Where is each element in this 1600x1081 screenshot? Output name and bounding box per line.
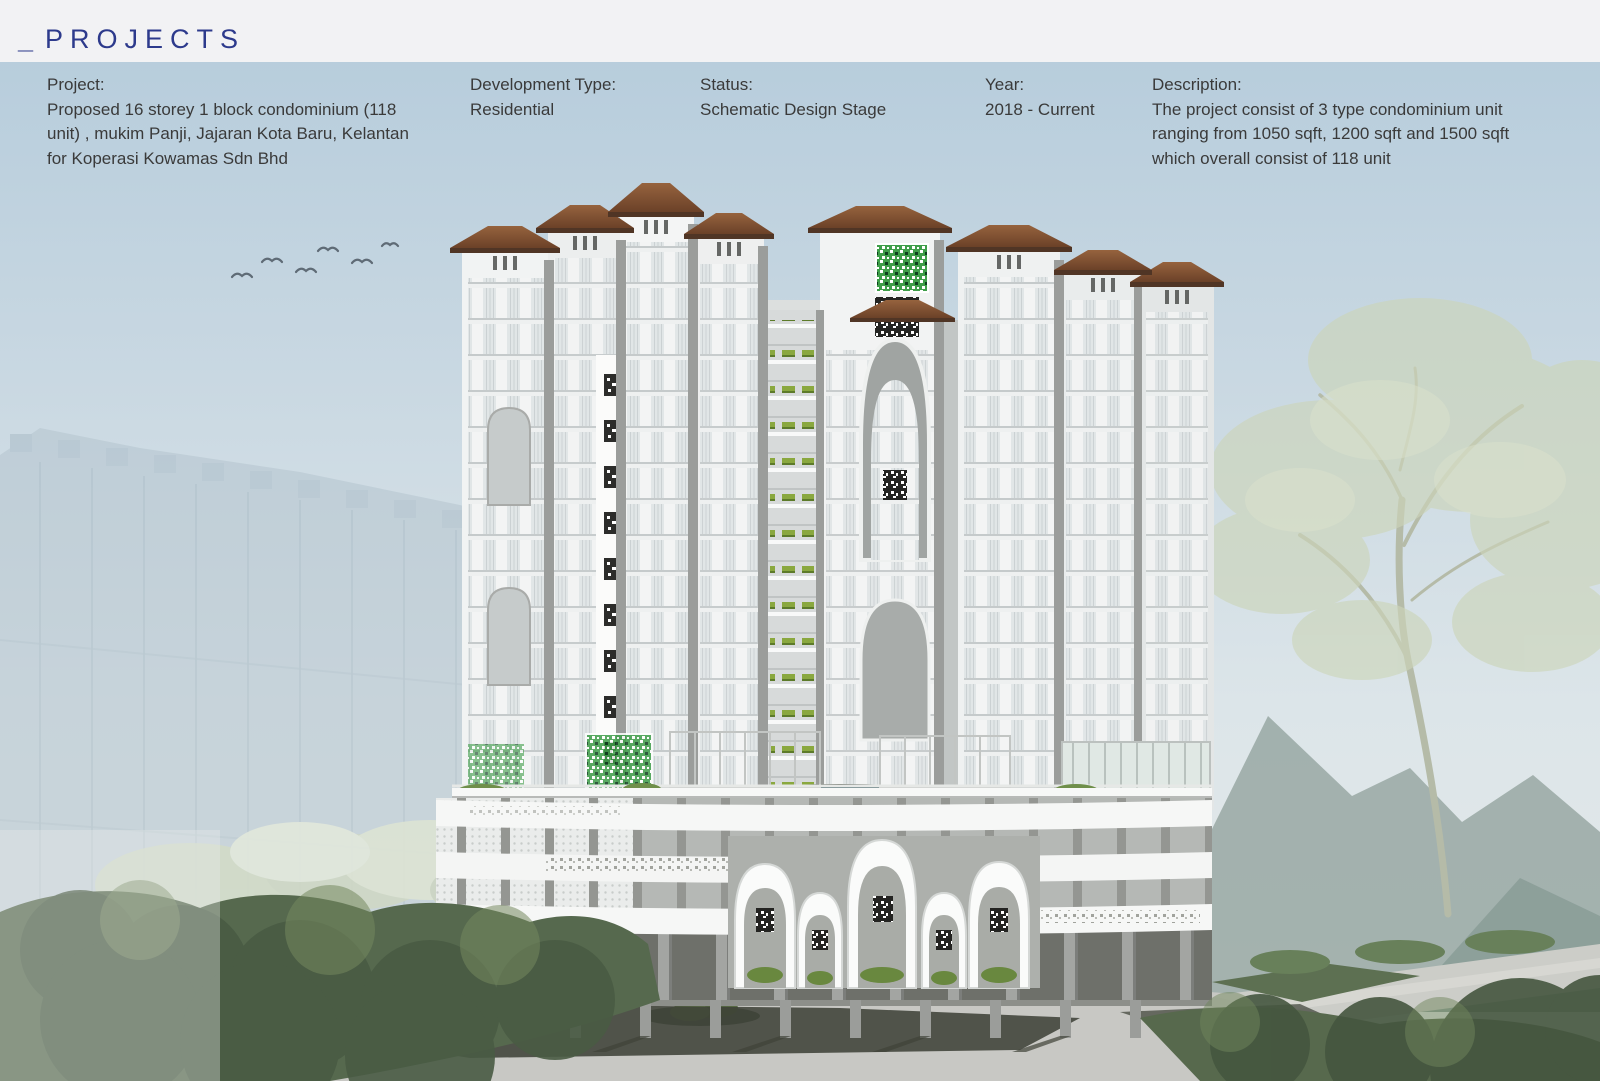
- entrance-arches: [728, 836, 1040, 988]
- page-title: PROJECTS: [45, 26, 245, 53]
- project-render: [0, 0, 1600, 1081]
- tower-facades: [462, 212, 1214, 810]
- portfolio-page: _ PROJECTS Project: Proposed 16 storey 1…: [0, 0, 1600, 1081]
- header-underscore: _: [18, 26, 33, 53]
- page-header: _ PROJECTS: [0, 0, 1600, 62]
- project-render-illustration: [0, 0, 1600, 1081]
- brand-logo-panel: [874, 244, 928, 338]
